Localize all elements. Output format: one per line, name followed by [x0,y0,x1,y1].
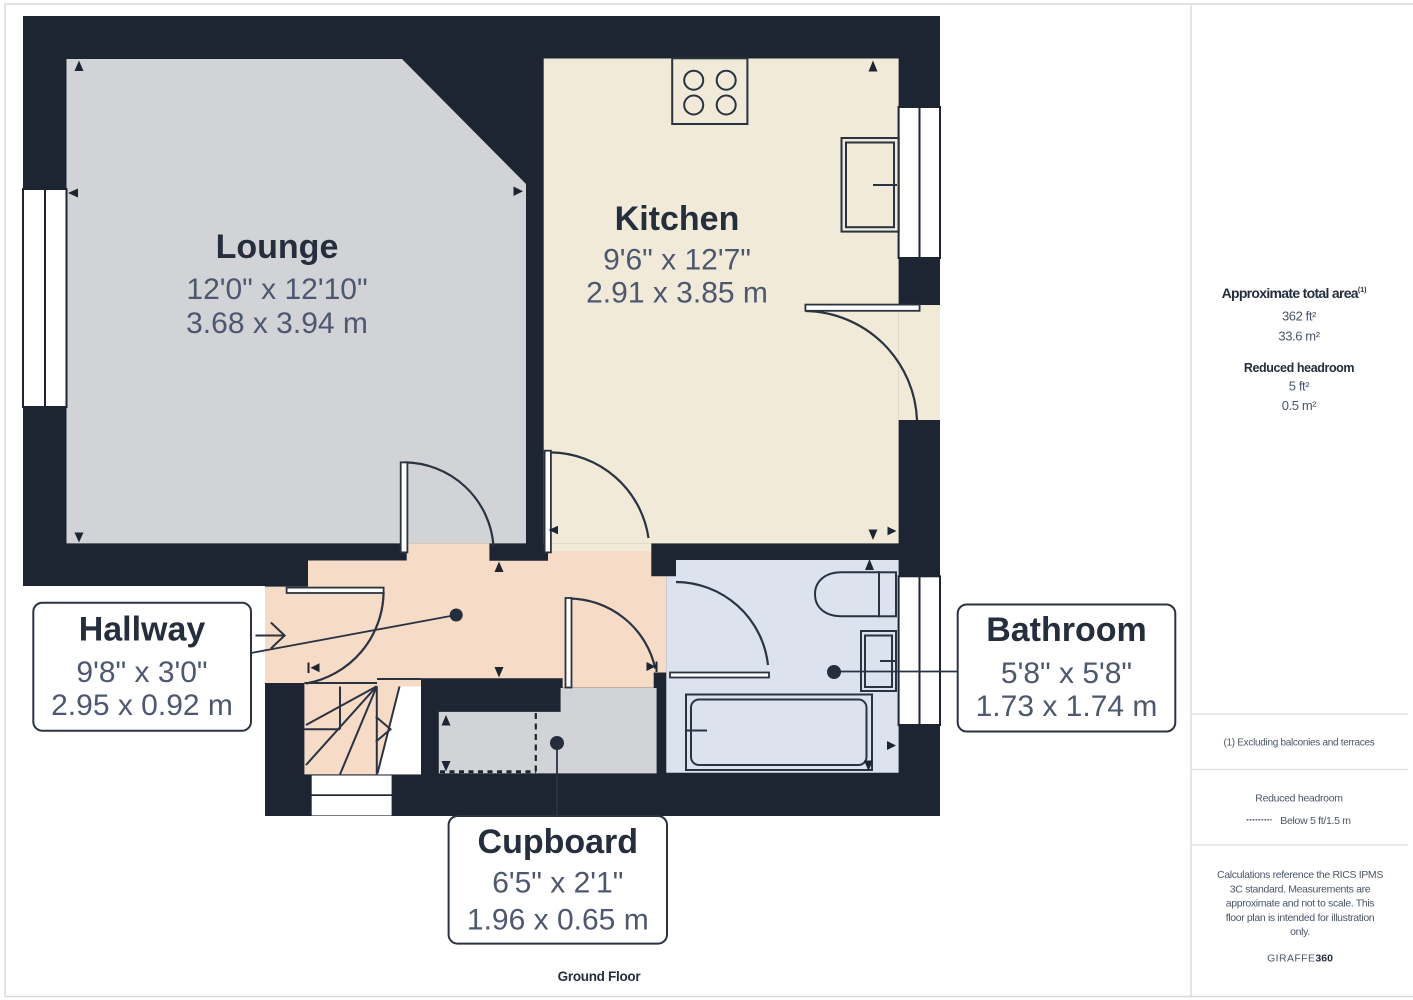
svg-text:Below 5 ft/1.5 m: Below 5 ft/1.5 m [1280,815,1351,827]
svg-text:Cupboard: Cupboard [478,823,639,861]
svg-text:Bathroom: Bathroom [986,611,1147,649]
svg-text:6'5" x 2'1": 6'5" x 2'1" [492,867,623,900]
svg-text:approximate and not to scale.: approximate and not to scale. This [1226,898,1375,910]
svg-text:Approximate total area(1): Approximate total area(1) [1222,285,1367,301]
svg-text:Ground Floor: Ground Floor [558,969,642,984]
svg-text:(1) Excluding balconies and te: (1) Excluding balconies and terraces [1224,738,1375,749]
svg-text:0.5 m²: 0.5 m² [1282,398,1318,413]
svg-text:1.73 x 1.74 m: 1.73 x 1.74 m [976,690,1158,723]
svg-text:362 ft²: 362 ft² [1282,309,1317,324]
svg-text:Reduced headroom: Reduced headroom [1244,361,1355,375]
svg-text:Hallway: Hallway [79,611,206,649]
svg-text:5 ft²: 5 ft² [1289,379,1310,394]
svg-text:Reduced headroom: Reduced headroom [1255,793,1343,805]
svg-text:floor plan is intended for ill: floor plan is intended for illustration [1226,912,1375,924]
svg-text:GIRAFFE360: GIRAFFE360 [1267,953,1333,965]
svg-text:Lounge: Lounge [216,228,339,266]
svg-text:3.68 x 3.94 m: 3.68 x 3.94 m [186,307,368,340]
svg-text:1.96 x 0.65 m: 1.96 x 0.65 m [467,904,649,937]
svg-text:2.91 x 3.85 m: 2.91 x 3.85 m [586,277,768,310]
svg-text:12'0" x 12'10": 12'0" x 12'10" [186,273,367,306]
svg-text:Kitchen: Kitchen [615,200,740,238]
svg-text:9'8" x 3'0": 9'8" x 3'0" [76,656,207,689]
svg-text:5'8" x 5'8": 5'8" x 5'8" [1001,657,1132,690]
svg-text:3C standard. Measurements are: 3C standard. Measurements are [1230,883,1371,895]
svg-text:Calculations reference the RIC: Calculations reference the RICS IPMS [1217,869,1383,881]
svg-text:9'6" x 12'7": 9'6" x 12'7" [603,244,751,277]
svg-text:only.: only. [1290,926,1310,938]
svg-text:2.95 x 0.92 m: 2.95 x 0.92 m [51,689,233,722]
svg-text:33.6 m²: 33.6 m² [1278,329,1320,344]
